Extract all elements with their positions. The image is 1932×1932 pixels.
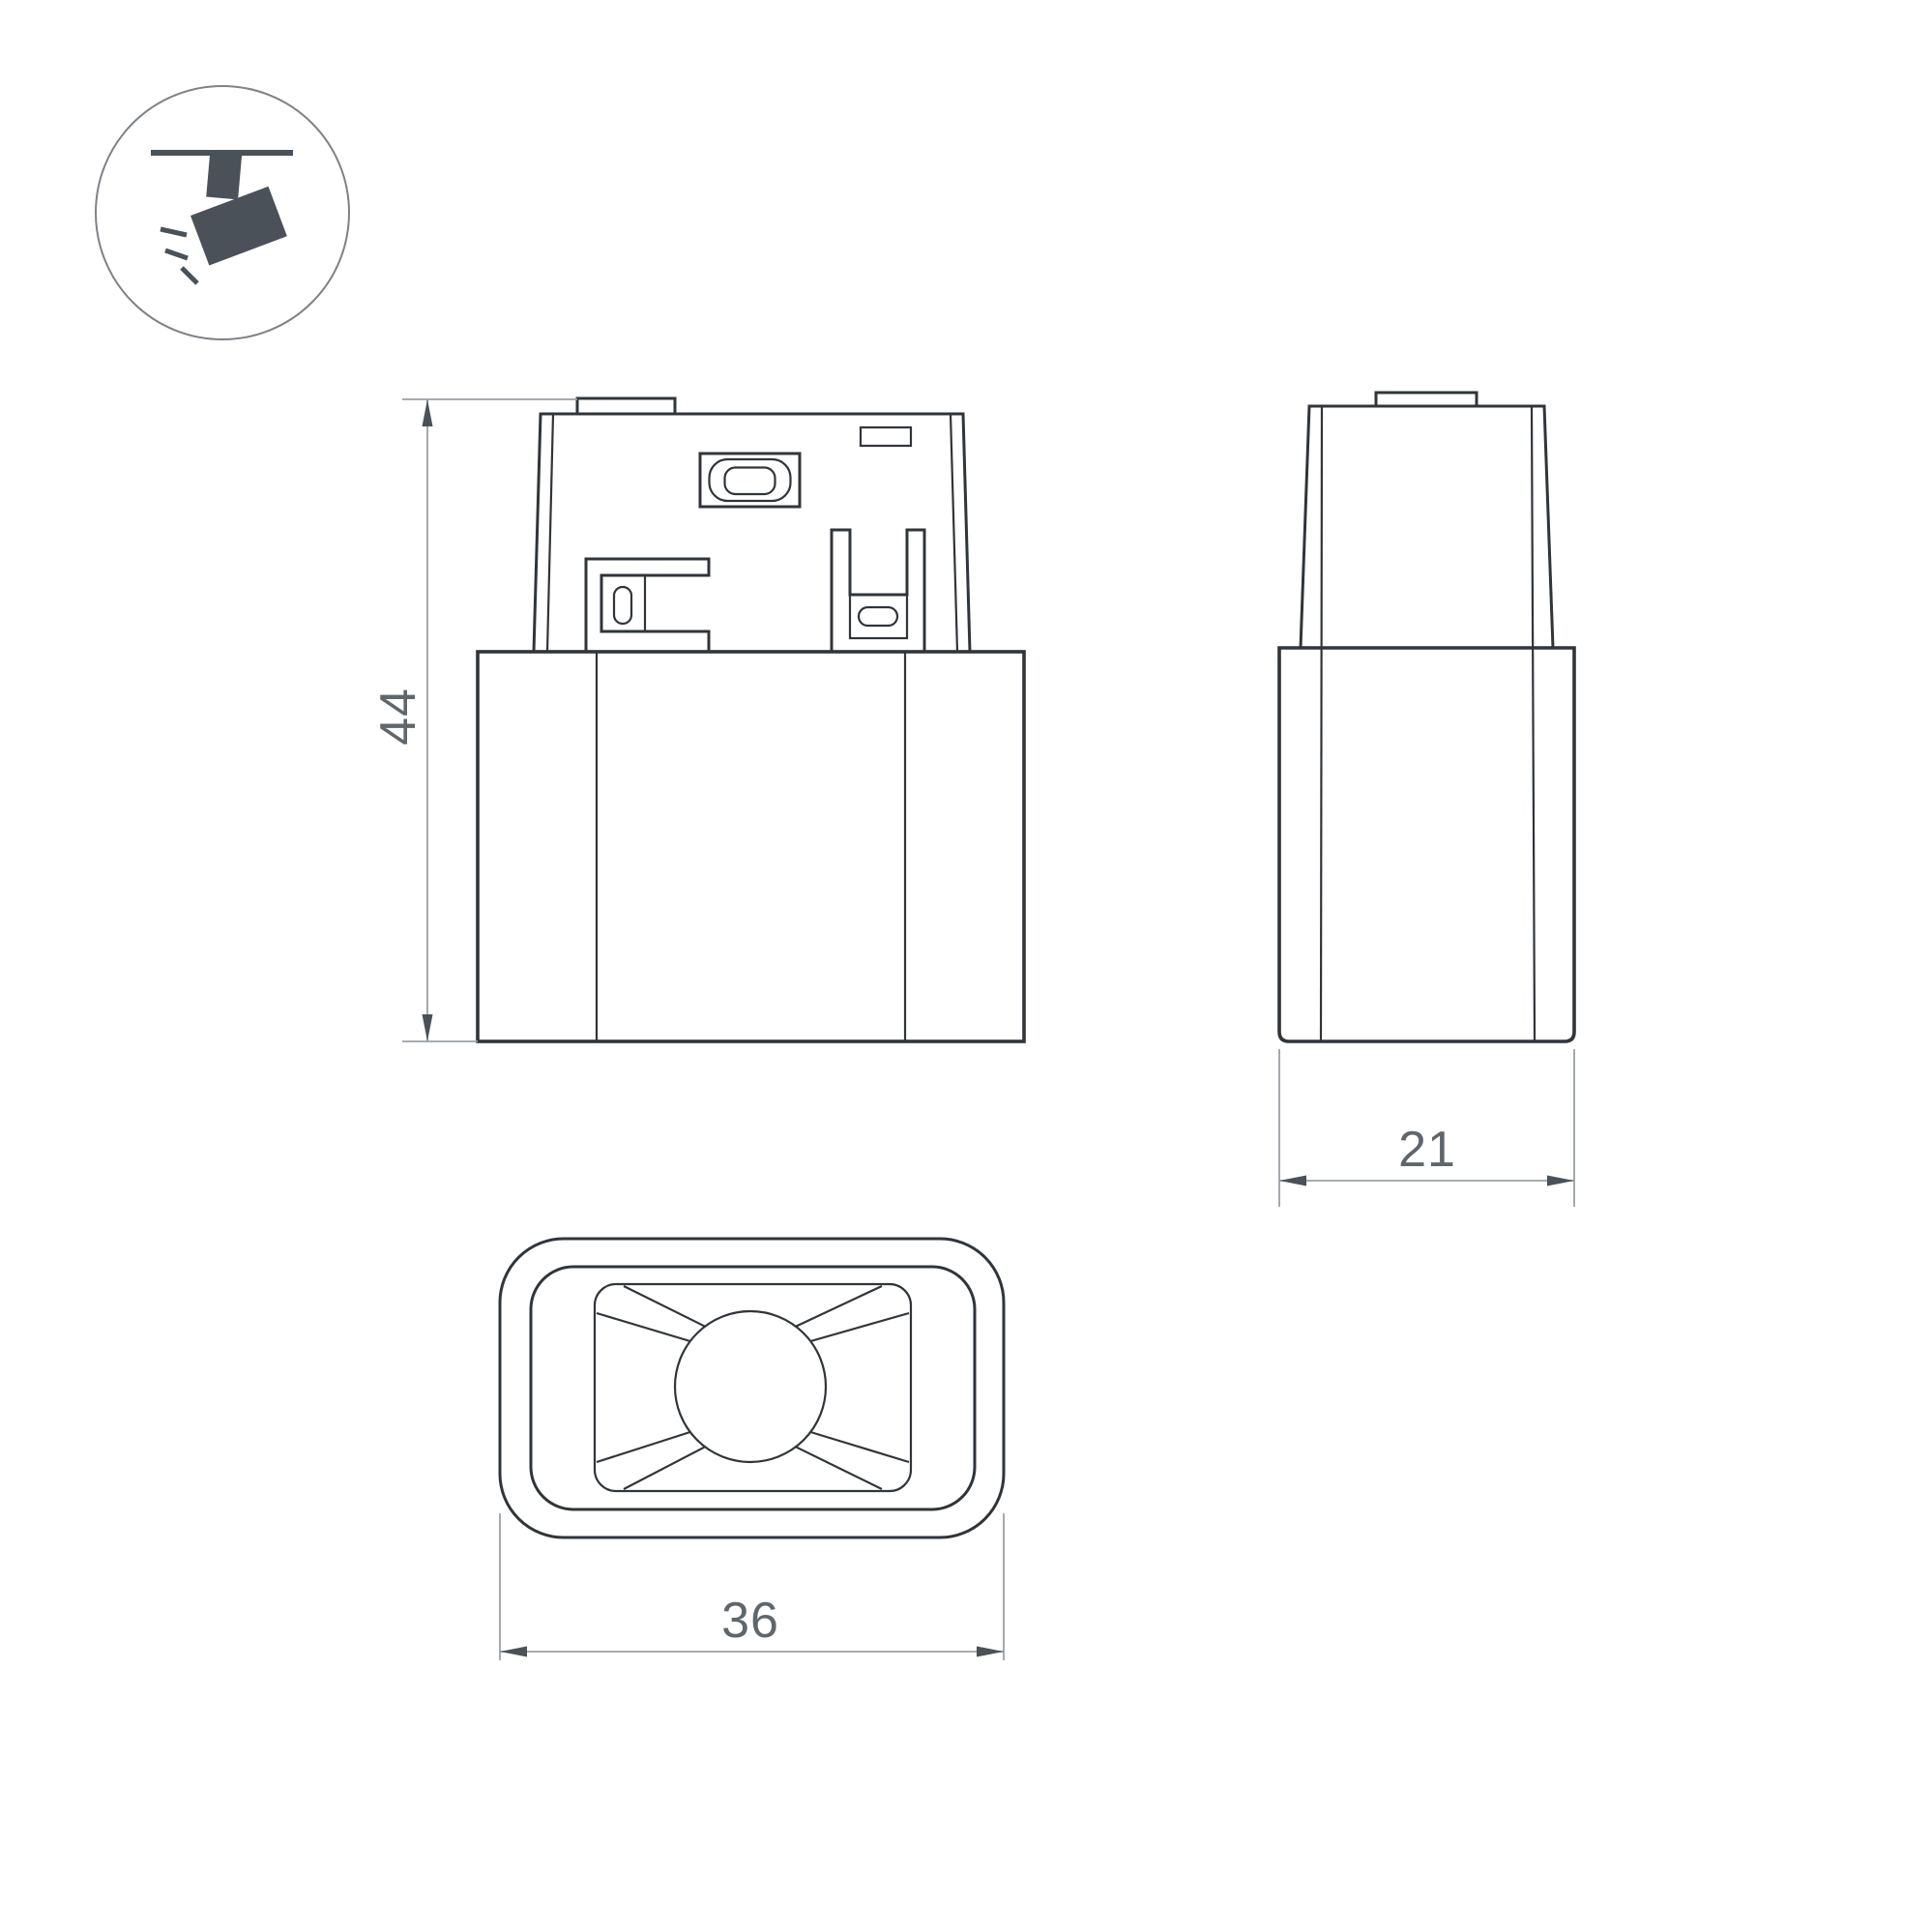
arrow-down-icon (423, 1014, 433, 1041)
bottom-reflector-lines (597, 1286, 909, 1489)
front-top-tab (577, 398, 675, 414)
arrow-up-icon (423, 399, 433, 426)
front-detail-rect (861, 427, 911, 446)
front-lower-housing (478, 652, 1024, 1041)
dimension-drawing-page: 44 21 36 (0, 0, 1932, 1932)
icon-stem (206, 152, 242, 200)
side-view (1279, 393, 1574, 1041)
front-upper-right-edge-line (951, 414, 957, 652)
arrow-left-icon (1279, 1176, 1306, 1186)
icon-light-ray (165, 250, 188, 258)
bottom-view (500, 1239, 1004, 1537)
front-left-contact-bracket (586, 559, 709, 652)
front-connector-detail (700, 454, 800, 507)
icon-fixture-body (190, 187, 287, 266)
side-upper-body (1301, 406, 1553, 648)
bottom-lens-circle (675, 1311, 826, 1462)
dimension-drawing-canvas: 44 21 36 (0, 0, 1932, 1932)
side-lower-housing (1279, 648, 1574, 1041)
bottom-lens-frame (595, 1284, 911, 1491)
arrow-right-icon (1547, 1176, 1574, 1186)
track-spotlight-icon (96, 86, 349, 339)
side-top-tab (1376, 393, 1477, 406)
dimension-height: 44 (370, 399, 577, 1041)
side-left-edge-line (1321, 406, 1322, 1041)
icon-light-ray (161, 229, 187, 235)
dimension-width-label: 36 (721, 1593, 779, 1649)
dimension-depth-label: 21 (1398, 1122, 1456, 1178)
front-right-contact-bracket (832, 530, 924, 652)
dimension-height-label: 44 (370, 688, 426, 746)
arrow-left-icon (500, 1647, 527, 1657)
front-view (478, 398, 1024, 1041)
icon-light-ray (182, 268, 197, 283)
dimension-depth: 21 (1279, 1049, 1574, 1207)
side-right-edge-line (1532, 406, 1535, 1041)
front-upper-left-edge-line (547, 414, 553, 652)
arrow-right-icon (977, 1647, 1004, 1657)
front-upper-body (534, 414, 970, 652)
bottom-inner-ring (531, 1267, 975, 1509)
dimension-width: 36 (500, 1513, 1004, 1660)
